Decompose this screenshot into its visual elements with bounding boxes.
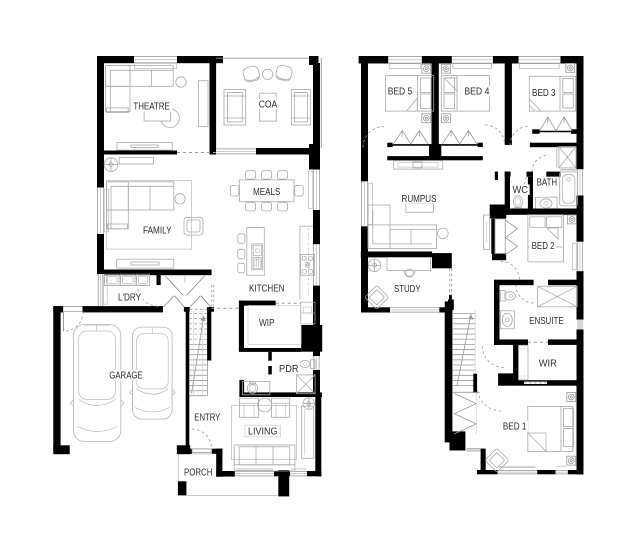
svg-text:LIVING: LIVING [248, 426, 278, 437]
svg-text:BED 5: BED 5 [388, 86, 413, 97]
svg-text:WC: WC [512, 185, 528, 196]
svg-text:WIR: WIR [539, 358, 557, 369]
svg-text:GARAGE: GARAGE [109, 371, 143, 382]
svg-text:WIP: WIP [259, 318, 275, 329]
svg-text:KITCHEN: KITCHEN [249, 283, 285, 294]
svg-text:MEALS: MEALS [253, 187, 281, 198]
svg-text:PORCH: PORCH [184, 468, 213, 479]
svg-text:THEATRE: THEATRE [133, 102, 170, 113]
svg-text:RUMPUS: RUMPUS [402, 194, 437, 205]
svg-text:BED 2: BED 2 [532, 241, 555, 252]
svg-text:PDR: PDR [279, 364, 299, 375]
svg-text:BATH: BATH [537, 177, 558, 188]
svg-text:STUDY: STUDY [394, 284, 421, 295]
svg-text:BED 1: BED 1 [503, 421, 527, 432]
svg-text:L'DRY: L'DRY [118, 292, 141, 303]
svg-text:ENTRY: ENTRY [194, 413, 220, 424]
svg-text:BED 4: BED 4 [464, 86, 489, 97]
svg-text:ENSUITE: ENSUITE [529, 316, 564, 327]
svg-text:FAMILY: FAMILY [143, 226, 172, 237]
svg-text:COA: COA [259, 99, 278, 110]
svg-text:BED 3: BED 3 [532, 88, 556, 99]
